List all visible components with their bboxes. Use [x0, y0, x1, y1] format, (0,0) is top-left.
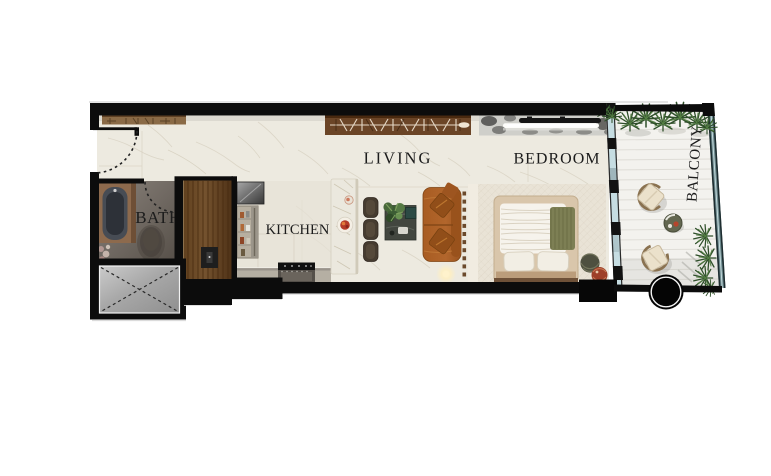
svg-text:KITCHEN: KITCHEN	[266, 222, 330, 238]
svg-text:BEDROOM: BEDROOM	[513, 151, 600, 168]
svg-text:LIVING: LIVING	[364, 149, 433, 168]
